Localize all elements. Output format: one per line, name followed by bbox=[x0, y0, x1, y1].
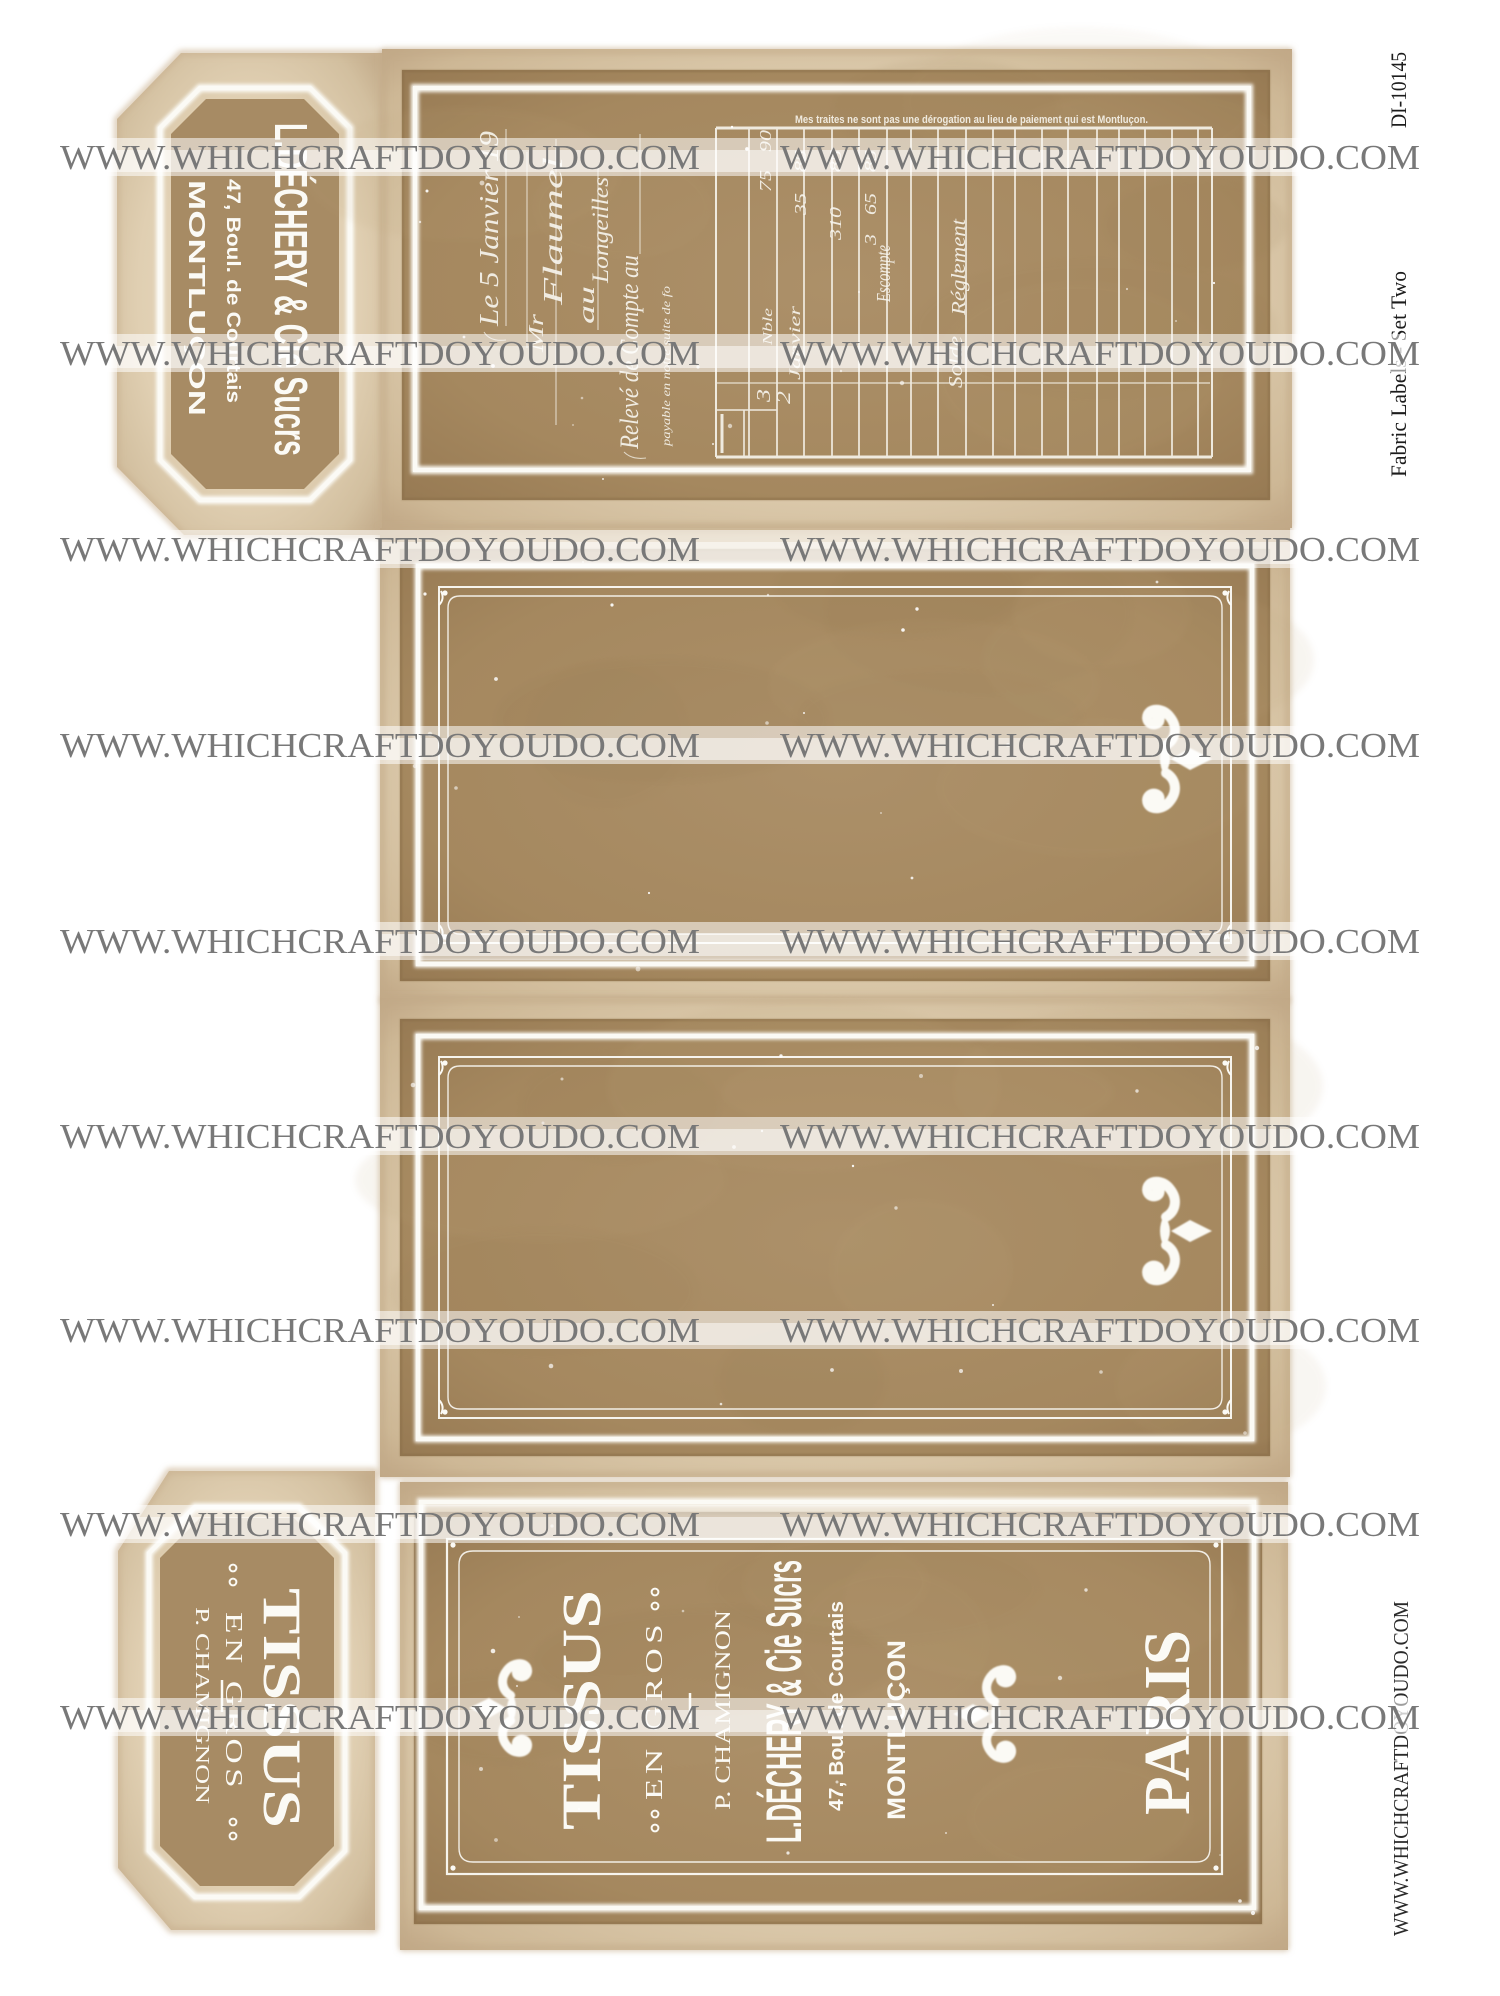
svg-text:2: 2 bbox=[773, 391, 795, 404]
svg-text:WWW.WHICHCRAFTDOYOUDO.COM: WWW.WHICHCRAFTDOYOUDO.COM bbox=[780, 1506, 1420, 1544]
svg-text:65: 65 bbox=[861, 193, 880, 215]
svg-text:3: 3 bbox=[861, 234, 880, 246]
svg-text:35: 35 bbox=[791, 193, 810, 216]
svg-text:WWW.WHICHCRAFTDOYOUDO.COM: WWW.WHICHCRAFTDOYOUDO.COM bbox=[60, 531, 700, 569]
svg-text:WWW.WHICHCRAFTDOYOUDO.COM: WWW.WHICHCRAFTDOYOUDO.COM bbox=[60, 335, 700, 373]
svg-text:Flaumel: Flaumel bbox=[538, 157, 568, 307]
svg-text:Longeilles: Longeilles bbox=[588, 177, 613, 284]
svg-text:WWW.WHICHCRAFTDOYOUDO.COM: WWW.WHICHCRAFTDOYOUDO.COM bbox=[1389, 1601, 1413, 1936]
svg-text:WWW.WHICHCRAFTDOYOUDO.COM: WWW.WHICHCRAFTDOYOUDO.COM bbox=[780, 1118, 1420, 1156]
svg-text:WWW.WHICHCRAFTDOYOUDO.COM: WWW.WHICHCRAFTDOYOUDO.COM bbox=[780, 923, 1420, 961]
svg-text:WWW.WHICHCRAFTDOYOUDO.COM: WWW.WHICHCRAFTDOYOUDO.COM bbox=[780, 531, 1420, 569]
svg-text:MONTLUÇON: MONTLUÇON bbox=[184, 180, 210, 416]
svg-text:WWW.WHICHCRAFTDOYOUDO.COM: WWW.WHICHCRAFTDOYOUDO.COM bbox=[780, 1312, 1420, 1350]
svg-text:au: au bbox=[574, 286, 599, 324]
svg-text:3: 3 bbox=[753, 389, 775, 403]
svg-text:Mes traites ne sont pas une dé: Mes traites ne sont pas une dérogation a… bbox=[795, 114, 1148, 126]
svg-text:WWW.WHICHCRAFTDOYOUDO.COM: WWW.WHICHCRAFTDOYOUDO.COM bbox=[60, 923, 700, 961]
svg-text:Réglement: Réglement bbox=[948, 218, 970, 316]
svg-text:WWW.WHICHCRAFTDOYOUDO.COM: WWW.WHICHCRAFTDOYOUDO.COM bbox=[60, 1312, 700, 1350]
svg-text:310: 310 bbox=[826, 206, 845, 241]
svg-text:WWW.WHICHCRAFTDOYOUDO.COM: WWW.WHICHCRAFTDOYOUDO.COM bbox=[60, 1699, 700, 1737]
svg-text:Fabric Labels - Set Two: Fabric Labels - Set Two bbox=[1386, 271, 1411, 477]
svg-text:WWW.WHICHCRAFTDOYOUDO.COM: WWW.WHICHCRAFTDOYOUDO.COM bbox=[780, 727, 1420, 765]
svg-text:WWW.WHICHCRAFTDOYOUDO.COM: WWW.WHICHCRAFTDOYOUDO.COM bbox=[60, 139, 700, 177]
svg-text:WWW.WHICHCRAFTDOYOUDO.COM: WWW.WHICHCRAFTDOYOUDO.COM bbox=[60, 1118, 700, 1156]
svg-text:WWW.WHICHCRAFTDOYOUDO.COM: WWW.WHICHCRAFTDOYOUDO.COM bbox=[780, 139, 1420, 177]
svg-text:WWW.WHICHCRAFTDOYOUDO.COM: WWW.WHICHCRAFTDOYOUDO.COM bbox=[780, 335, 1420, 373]
svg-text:Escompte: Escompte bbox=[873, 245, 895, 303]
svg-text:WWW.WHICHCRAFTDOYOUDO.COM: WWW.WHICHCRAFTDOYOUDO.COM bbox=[60, 1506, 700, 1544]
svg-text:WWW.WHICHCRAFTDOYOUDO.COM: WWW.WHICHCRAFTDOYOUDO.COM bbox=[60, 727, 700, 765]
svg-text:DI-10145: DI-10145 bbox=[1386, 52, 1411, 128]
svg-text:WWW.WHICHCRAFTDOYOUDO.COM: WWW.WHICHCRAFTDOYOUDO.COM bbox=[780, 1699, 1420, 1737]
